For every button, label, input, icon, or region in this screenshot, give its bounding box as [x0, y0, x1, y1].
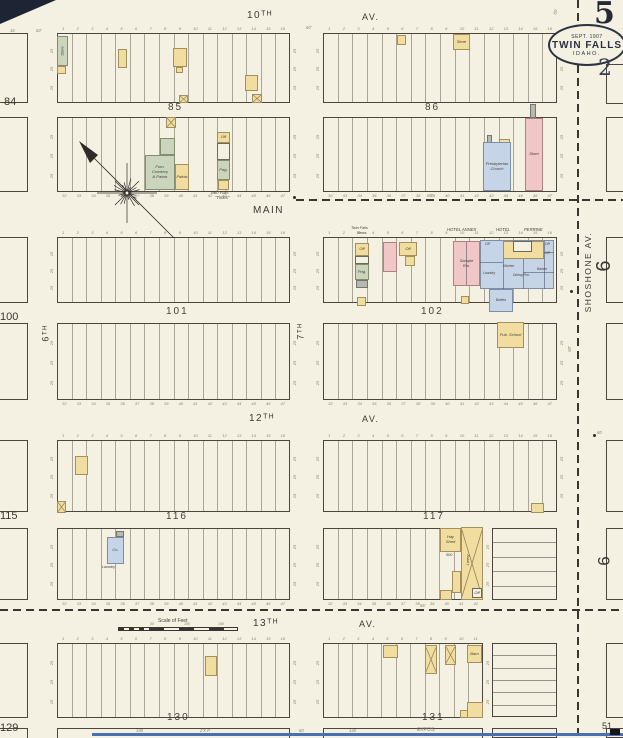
scale-bar-tick: 100	[184, 622, 190, 626]
building: Prtg.	[217, 160, 230, 180]
lot-line	[352, 324, 353, 399]
lot-number: 8	[430, 27, 432, 31]
lot-number: 32	[328, 194, 332, 198]
lot-line	[484, 441, 485, 511]
building-label: Presbyterian Church	[484, 143, 510, 190]
lot-number: 3	[357, 434, 359, 438]
lot-number: 35	[372, 194, 376, 198]
lot-line	[101, 324, 102, 399]
lot-number: 10	[193, 434, 197, 438]
lot-line	[203, 34, 204, 102]
lot-line	[499, 34, 500, 102]
scale-bar	[118, 627, 238, 631]
lot-number: 11	[208, 637, 212, 641]
building	[530, 104, 536, 118]
lot-number: 14	[518, 434, 522, 438]
lot-number: 3	[357, 27, 359, 31]
row-lot-line	[493, 705, 556, 706]
lot-number: 4	[106, 434, 108, 438]
lot-number: 44	[504, 402, 508, 406]
lot-number: 3	[91, 434, 93, 438]
lot-line	[232, 118, 233, 191]
scan-edge-line	[92, 733, 623, 736]
lot-number: 7	[416, 231, 418, 235]
street-label: AV.	[362, 13, 380, 22]
lot-number: 2	[77, 434, 79, 438]
lot-number: 43	[489, 402, 493, 406]
lot-line	[217, 238, 218, 302]
lot-number: 47	[281, 602, 285, 606]
lot-number: 40	[444, 602, 448, 606]
lot-number: 6	[401, 434, 403, 438]
lot-number: 4	[106, 27, 108, 31]
lot-number: 9	[179, 637, 181, 641]
map-caption: Dining Rm.	[513, 274, 530, 277]
lot-number: 37	[135, 402, 139, 406]
lot-number: 32	[328, 602, 332, 606]
lot-line	[101, 529, 102, 599]
lot-number: 1	[328, 27, 330, 31]
lot-line	[159, 34, 160, 102]
map-caption: News	[357, 232, 367, 236]
partial-block	[0, 237, 28, 303]
lot-depth-tick: 25	[316, 361, 320, 365]
lot-number: 35	[106, 602, 110, 606]
margin-number: 115	[0, 511, 18, 522]
lot-depth-tick: 25	[293, 563, 297, 567]
dimension-label: 60'	[568, 346, 572, 351]
lot-line	[144, 644, 145, 717]
lot-number: 44	[237, 602, 241, 606]
lot-number: 46	[266, 194, 270, 198]
lot-depth-tick: 25	[50, 85, 54, 89]
building	[176, 67, 183, 73]
lot-line	[352, 529, 353, 599]
lot-line	[203, 644, 204, 717]
lot-line	[203, 238, 204, 302]
lot-number: 2	[77, 27, 79, 31]
lot-depth-tick: 25	[560, 286, 564, 290]
lot-depth-tick: 25	[316, 475, 320, 479]
lot-number: 2	[343, 27, 345, 31]
lot-line	[144, 34, 145, 102]
lot-number: 46	[266, 602, 270, 606]
lot-number: 9	[179, 434, 181, 438]
dimension-label: 60'	[306, 26, 311, 30]
lot-number: 6	[135, 434, 137, 438]
lot-line	[130, 644, 131, 717]
lot-line	[275, 644, 276, 717]
lot-line	[72, 441, 73, 511]
lot-number: 33	[343, 602, 347, 606]
map-caption: Laundry	[102, 566, 115, 570]
lot-number: 39	[430, 402, 434, 406]
building: Store	[453, 34, 470, 50]
lot-line	[528, 324, 529, 399]
lot-line	[261, 529, 262, 599]
lot-line	[232, 238, 233, 302]
lot-number: 45	[518, 194, 522, 198]
lot-number: 43	[222, 602, 226, 606]
lot-number: 47	[281, 402, 285, 406]
lot-number: 44	[237, 402, 241, 406]
lot-depth-tick: 25	[316, 381, 320, 385]
lot-number: 36	[120, 602, 124, 606]
lot-number: 41	[460, 402, 464, 406]
lot-number: 41	[459, 602, 463, 606]
lot-line	[275, 441, 276, 511]
lot-line	[232, 529, 233, 599]
building-label: Off	[356, 244, 368, 255]
lot-line	[396, 324, 397, 399]
lot-depth-tick: 25	[293, 660, 297, 664]
lot-number: 5	[387, 27, 389, 31]
lot-number: 41	[193, 602, 197, 606]
lot-number: 34	[357, 602, 361, 606]
lot-number: 11	[208, 27, 212, 31]
lot-line	[188, 324, 189, 399]
lot-line	[528, 34, 529, 102]
lot-number: 5	[120, 434, 122, 438]
block-number: 102	[421, 307, 444, 317]
street-label: 7ᵀᴴ	[297, 322, 306, 339]
map-caption: Laundry	[483, 272, 495, 275]
lot-number: 11	[474, 637, 478, 641]
lot-line	[542, 324, 543, 399]
lot-number: 37	[401, 194, 405, 198]
lot-number: 34	[357, 402, 361, 406]
lot-depth-tick: 25	[486, 699, 490, 703]
lot-line	[275, 324, 276, 399]
lot-line	[352, 238, 353, 302]
lot-line	[484, 324, 485, 399]
lot-line	[261, 238, 262, 302]
partial-block	[0, 117, 28, 192]
lot-depth-tick: 25	[560, 475, 564, 479]
lot-depth-tick: 25	[293, 699, 297, 703]
block-outline	[323, 643, 483, 718]
lot-line	[440, 441, 441, 511]
lot-depth-tick: 25	[293, 154, 297, 158]
lot-number: 41	[460, 194, 464, 198]
lot-number: 10	[193, 231, 197, 235]
lot-line	[86, 441, 87, 511]
building-label: Store	[454, 35, 469, 49]
lot-number: 7	[149, 637, 151, 641]
lot-line	[338, 118, 339, 191]
dimension-label: 16	[10, 29, 15, 33]
lot-number: 44	[237, 194, 241, 198]
lot-line	[246, 118, 247, 191]
map-caption: Off	[485, 243, 490, 246]
building: Off	[355, 243, 369, 256]
building	[75, 456, 88, 475]
lot-number: 41	[193, 402, 197, 406]
lot-number: 7	[415, 637, 417, 641]
lot-depth-tick: 25	[293, 456, 297, 460]
lot-number: 1	[62, 637, 64, 641]
lot-number: 4	[372, 231, 374, 235]
row-lot-line	[493, 571, 556, 572]
lot-line	[338, 324, 339, 399]
lot-number: 2	[343, 231, 345, 235]
lot-depth-tick: 25	[560, 341, 564, 345]
lot-number: 8	[430, 637, 432, 641]
lot-number: 33	[77, 602, 81, 606]
lot-number: 14	[251, 27, 255, 31]
building	[461, 296, 469, 304]
lot-number: 12	[222, 637, 226, 641]
lot-number: 3	[91, 637, 93, 641]
lot-line	[352, 118, 353, 191]
lot-line	[130, 34, 131, 102]
lot-line	[203, 529, 204, 599]
lot-depth-tick: 25	[50, 341, 54, 345]
lot-number: 34	[91, 402, 95, 406]
lot-number: 38	[416, 402, 420, 406]
building	[205, 656, 217, 676]
partial-block	[0, 33, 28, 103]
map-caption: 500	[446, 554, 452, 558]
lot-number: 11	[474, 434, 478, 438]
lot-number: 39	[164, 602, 168, 606]
lot-line	[217, 529, 218, 599]
lot-depth-tick: 25	[316, 582, 320, 586]
lot-depth-tick: 25	[560, 85, 564, 89]
lot-number: 44	[504, 194, 508, 198]
lot-line	[72, 324, 73, 399]
block-number: 116	[166, 512, 188, 522]
lot-line	[246, 441, 247, 511]
street-label: SHOSHONE AV.	[584, 232, 593, 313]
lot-line	[188, 644, 189, 717]
building: Off	[217, 132, 230, 143]
building: Presbyterian Church	[483, 142, 511, 191]
map-caption: Barber	[537, 268, 547, 271]
row-lot-section	[492, 528, 557, 600]
building	[118, 49, 127, 68]
lot-depth-tick: 25	[50, 286, 54, 290]
lot-depth-tick: 25	[50, 494, 54, 498]
lot-line	[144, 441, 145, 511]
lot-line	[440, 238, 441, 302]
lot-line	[425, 529, 426, 599]
lot-depth-tick: 25	[316, 269, 320, 273]
lot-depth-tick: 25	[316, 154, 320, 158]
block-number: 131	[422, 713, 445, 723]
lot-number: 14	[251, 231, 255, 235]
lot-number: 7	[416, 27, 418, 31]
lot-number: 15	[266, 637, 270, 641]
lot-number: 14	[251, 434, 255, 438]
building-label: Hay Shed	[441, 529, 460, 551]
lot-number: 35	[372, 402, 376, 406]
building	[383, 645, 398, 658]
lot-number: 5	[120, 27, 122, 31]
lot-number: 38	[416, 194, 420, 198]
lot-depth-tick: 25	[50, 361, 54, 365]
lot-line	[513, 441, 514, 511]
lot-line	[411, 441, 412, 511]
building	[460, 710, 468, 718]
lot-number: 46	[533, 402, 537, 406]
building	[217, 143, 230, 160]
row-lot-line	[493, 668, 556, 669]
lot-number: 36	[387, 194, 391, 198]
building	[57, 501, 66, 513]
lot-line	[130, 441, 131, 511]
lot-number: 40	[179, 602, 183, 606]
building-partition-line	[466, 242, 467, 285]
lot-number: 5	[120, 637, 122, 641]
lot-line	[338, 644, 339, 717]
badge-city: TWIN FALLS	[552, 40, 622, 51]
building	[218, 180, 229, 190]
lot-line	[232, 441, 233, 511]
lot-number: 6	[401, 231, 403, 235]
lot-number: 13	[237, 434, 241, 438]
scan-edge-nub	[610, 729, 620, 735]
lot-depth-tick: 25	[560, 456, 564, 460]
building: Pub. School	[497, 322, 524, 348]
building	[513, 241, 532, 252]
lot-number: 37	[401, 402, 405, 406]
lot-number: 5	[387, 231, 389, 235]
lot-number: 12	[222, 231, 226, 235]
x-brace-mark	[426, 646, 436, 673]
building: Hay Shed	[440, 528, 461, 552]
map-canvas: 1234567891011121314151625252525252512345…	[0, 0, 623, 738]
lot-number: 12	[489, 434, 493, 438]
lot-depth-tick: 25	[316, 544, 320, 548]
badge-state: IDAHO.	[573, 51, 601, 57]
lot-depth-tick: 25	[50, 252, 54, 256]
row-lot-line	[493, 542, 556, 543]
building: Off	[399, 242, 417, 256]
lot-number: 14	[518, 27, 522, 31]
lot-depth-tick: 25	[486, 563, 490, 567]
lot-number: 1	[62, 434, 64, 438]
map-caption: PERRINE	[524, 228, 543, 232]
lot-line	[411, 118, 412, 191]
dimension-label: 60'	[36, 29, 41, 33]
partial-block	[0, 643, 28, 718]
lot-depth-tick: 25	[293, 134, 297, 138]
lot-number: 11	[474, 27, 478, 31]
lot-number: 6	[135, 27, 137, 31]
lot-number: 2	[343, 434, 345, 438]
lot-line	[411, 34, 412, 102]
lot-line	[144, 324, 145, 399]
lot-number: 15	[266, 231, 270, 235]
street-centerline	[296, 199, 623, 201]
lot-depth-tick: 25	[486, 544, 490, 548]
lot-line	[425, 118, 426, 191]
lot-line	[410, 529, 411, 599]
lot-line	[232, 34, 233, 102]
x-brace-mark	[446, 646, 455, 664]
lot-number: 10	[460, 434, 464, 438]
lot-line	[513, 118, 514, 191]
lot-number: 2	[77, 637, 79, 641]
lot-number: 12	[489, 27, 493, 31]
scale-bar-fine-segments	[119, 628, 149, 630]
dimension-label: 60'	[553, 9, 558, 15]
building	[467, 702, 483, 718]
lot-number: 38	[149, 602, 153, 606]
lot-depth-tick: 25	[293, 494, 297, 498]
building-label: Baths	[490, 290, 512, 311]
lot-line	[115, 324, 116, 399]
lot-line	[101, 441, 102, 511]
lot-depth-tick: 25	[50, 456, 54, 460]
lot-depth-tick: 25	[316, 173, 320, 177]
lot-line	[174, 34, 175, 102]
lot-number: 16	[547, 434, 551, 438]
building	[397, 35, 406, 45]
lot-number: 11	[208, 434, 212, 438]
lot-depth-tick: 25	[560, 154, 564, 158]
lot-line	[86, 644, 87, 717]
lot-number: 6	[401, 637, 403, 641]
lot-line	[72, 34, 73, 102]
lot-line	[246, 529, 247, 599]
lot-number: 16	[281, 434, 285, 438]
lot-depth-tick: 25	[293, 286, 297, 290]
building	[531, 503, 544, 513]
survey-dot	[570, 290, 573, 293]
lot-number: 32	[62, 402, 66, 406]
x-brace-mark	[58, 502, 65, 512]
lot-number: 33	[343, 194, 347, 198]
lot-line	[542, 441, 543, 511]
lot-number: 16	[281, 27, 285, 31]
lot-number: 8	[430, 434, 432, 438]
lot-depth-tick: 25	[316, 494, 320, 498]
street-centerline	[577, 0, 579, 738]
lot-depth-tick: 25	[316, 456, 320, 460]
margin-number: 6	[594, 260, 614, 271]
lot-line	[382, 34, 383, 102]
lot-depth-tick: 25	[560, 67, 564, 71]
lot-line	[159, 529, 160, 599]
street-label: MAIN	[253, 206, 284, 216]
lot-number: 37	[135, 602, 139, 606]
lot-line	[246, 34, 247, 102]
lot-depth-tick: 25	[560, 494, 564, 498]
building-label: Off	[218, 133, 229, 142]
lot-number: 4	[372, 637, 374, 641]
lot-line	[410, 644, 411, 717]
lot-number: 42	[474, 194, 478, 198]
lot-number: 9	[179, 27, 181, 31]
lot-depth-tick: 25	[293, 341, 297, 345]
lot-number: 37	[401, 602, 405, 606]
lot-line	[217, 34, 218, 102]
lot-number: 8	[164, 434, 166, 438]
lot-depth-tick: 25	[560, 173, 564, 177]
lot-number: 32	[62, 602, 66, 606]
lot-line	[159, 644, 160, 717]
building	[355, 256, 369, 264]
lot-number: 33	[77, 402, 81, 406]
lot-depth-tick: 25	[316, 286, 320, 290]
survey-dot	[593, 434, 596, 437]
block-number: 117	[423, 512, 445, 522]
lot-number: 15	[266, 27, 270, 31]
lot-line	[232, 644, 233, 717]
row-lot-line	[493, 586, 556, 587]
